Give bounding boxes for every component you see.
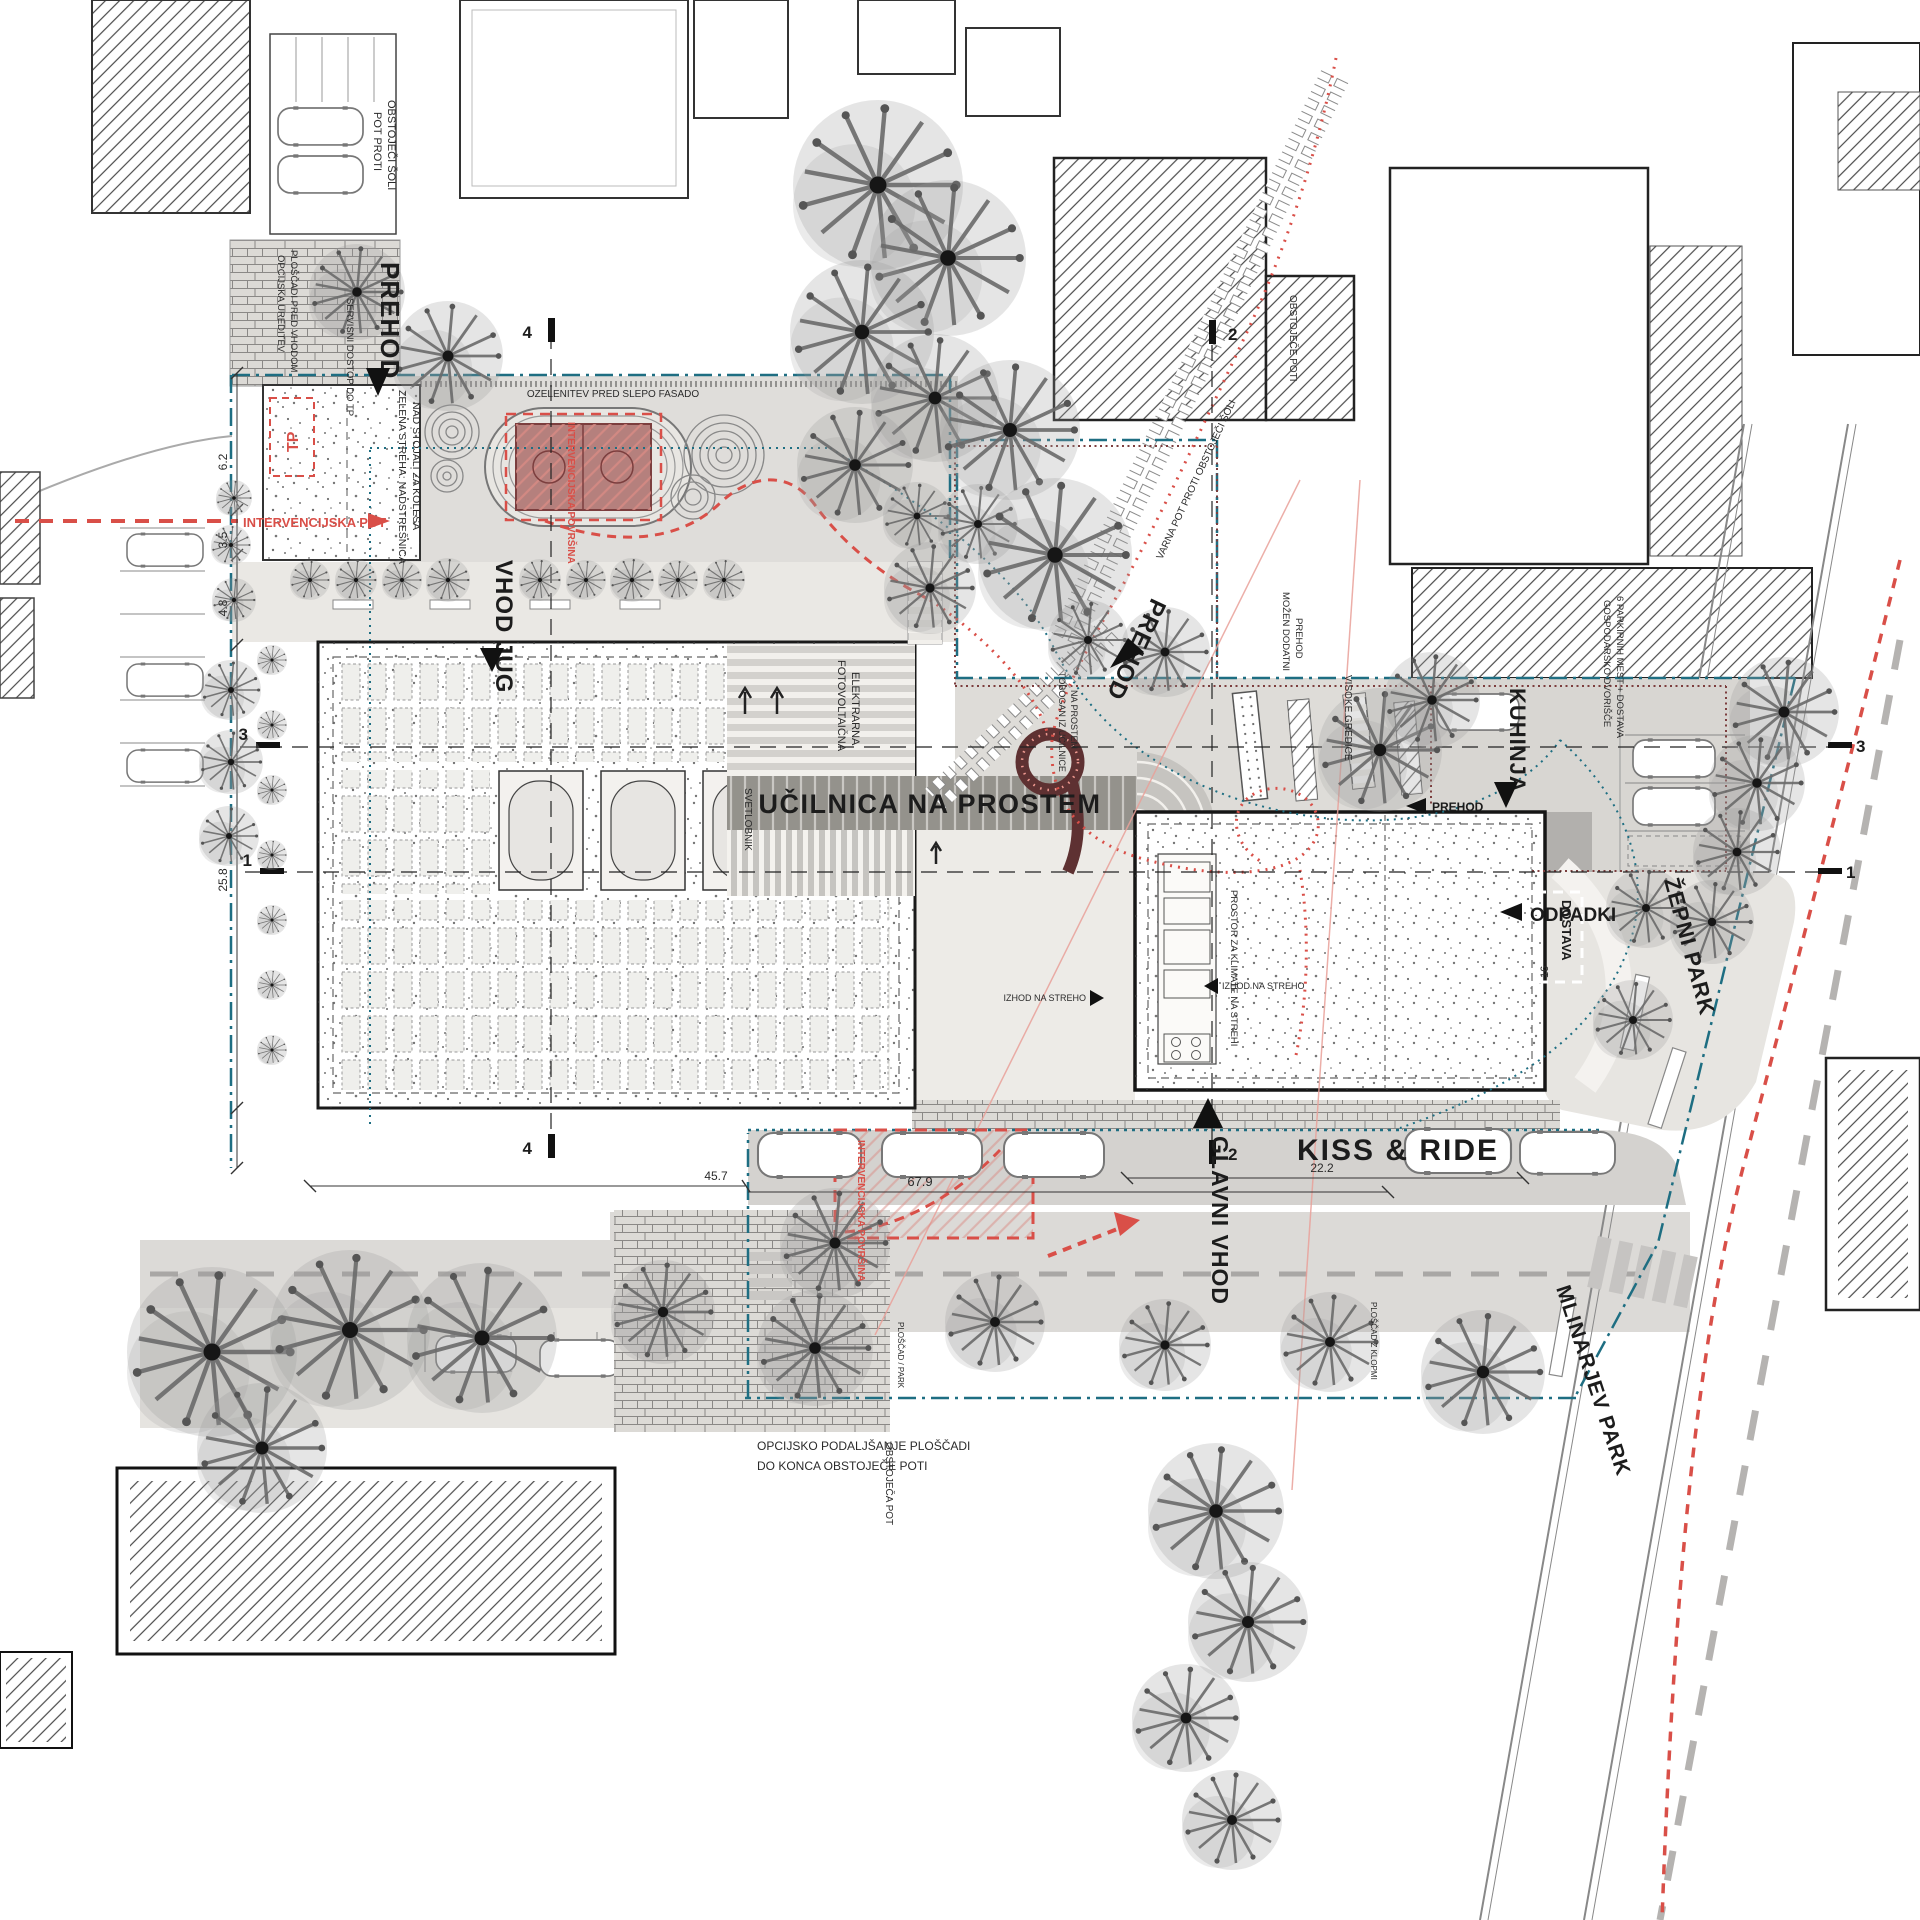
label-kuhinja: KUHINJA xyxy=(1505,688,1530,793)
label-gospodarsko-1: GOSPODARSKO DVORIŠČE xyxy=(1601,600,1612,727)
label-gospodarsko-2: 6 PARKIRNIH MEST + DOSTAVA xyxy=(1614,596,1625,739)
existing-building xyxy=(1390,168,1648,564)
dim-67-9: 67.9 xyxy=(907,1174,932,1189)
label-mozen-1: MOŽEN DODATNI xyxy=(1280,592,1291,671)
label-ozelenitev: OZELENITEV PRED SLEPO FASADO xyxy=(527,389,699,400)
label-ploscad-klopmi: PLOŠČAD Z KLOPMI xyxy=(1369,1302,1378,1380)
section-2-bottom: 2 xyxy=(1228,1145,1237,1164)
section-1-right: 1 xyxy=(1846,863,1855,882)
existing-building-hatched xyxy=(0,598,34,698)
label-opcijska-1: OPCIJSKA UREDITEV xyxy=(275,255,286,353)
dim-45-7: 45.7 xyxy=(704,1169,728,1183)
dim-6-2: 6.2 xyxy=(216,453,230,470)
dim-22-2: 22.2 xyxy=(1310,1161,1334,1175)
label-prehod-top: PREHOD xyxy=(375,262,405,379)
label-pot-proti-2: OBSTOJEČI ŠOLI xyxy=(385,100,398,190)
label-izhod-na-streho-west: IZHOD NA STREHO xyxy=(1003,993,1086,1003)
dim-4-8: 4.8 xyxy=(216,599,230,616)
parked-car xyxy=(127,534,203,566)
parked-car xyxy=(278,156,363,193)
parked-car xyxy=(758,1133,861,1177)
section-4-top: 4 xyxy=(523,323,533,342)
existing-building xyxy=(694,0,788,118)
label-tobogan-1: TOBOGAN IZ UČILNICE xyxy=(1057,672,1067,772)
pv-array xyxy=(340,900,890,1090)
paved-strip-entrance xyxy=(912,1100,1560,1130)
label-servisni-dostop: SERVISNI DOSTOP DO TP xyxy=(344,298,355,416)
dim-25-8: 25.8 xyxy=(216,868,230,892)
site-plan-canvas: PREHOD POT PROTI OBSTOJEČI ŠOLI OPCIJSKA… xyxy=(0,0,1920,1920)
existing-building xyxy=(858,0,955,74)
parked-car xyxy=(1633,788,1715,825)
label-obstojeca-pot: OBSTOJEČA POT xyxy=(883,1442,896,1525)
existing-building-hatched xyxy=(1266,276,1354,420)
pv-array xyxy=(340,770,490,894)
label-dostava: DOSTAVA xyxy=(1559,900,1574,961)
label-intervencijska-pot: INTERVENCIJSKA POT xyxy=(243,515,386,530)
label-opcijsko-1: OPCIJSKO PODALJŠANJE PLOŠČADI xyxy=(757,1438,970,1453)
building-hatch-fill xyxy=(6,1658,66,1742)
entrance-plaza xyxy=(915,818,1135,1100)
existing-building xyxy=(1793,43,1920,355)
parked-car xyxy=(278,108,363,145)
existing-building xyxy=(92,0,250,213)
label-ucilnica: UČILNICA NA PROSTEM xyxy=(759,788,1102,819)
label-vhod-jug: VHOD JUG xyxy=(490,560,517,693)
label-pot-proti-1: POT PROTI xyxy=(371,112,383,171)
label-tobogan-2: NA PROSTEM xyxy=(1069,690,1079,749)
label-mozen-2: PREHOD xyxy=(1293,618,1304,659)
label-svetlobnik: SVETLOBNIK xyxy=(742,788,753,851)
dim-16: 16 xyxy=(1539,966,1551,978)
label-fotovoltaicna-2: ELEKTRARNA xyxy=(849,672,861,746)
label-opcijsko-2: DO KONCA OBSTOJEČE POTI xyxy=(757,1458,927,1473)
parked-car xyxy=(127,664,203,696)
parked-car xyxy=(882,1133,982,1177)
kitchen-equipment xyxy=(1158,854,1216,1064)
parked-car xyxy=(1004,1133,1104,1177)
label-intervencijska-povrsina-zone: INTERVENCIJSKA POVRŠINA xyxy=(855,1140,868,1282)
label-obstojece-poti: OBSTOJEČE POTI xyxy=(1287,295,1300,382)
parked-car xyxy=(127,750,203,782)
label-tp: TP xyxy=(285,431,302,452)
section-3-left: 3 xyxy=(239,725,248,744)
label-prostor-klimate: PROSTOR ZA KLIMATE NA STREHI xyxy=(1228,890,1239,1046)
parked-car xyxy=(1633,740,1715,777)
east-building xyxy=(1135,812,1545,1090)
label-prehod-small: PREHOD xyxy=(1432,800,1484,814)
amphi-steps-bars xyxy=(727,830,915,896)
section-3-right: 3 xyxy=(1856,737,1865,756)
section-1-left: 1 xyxy=(243,851,252,870)
building-hatch-fill xyxy=(130,1481,602,1641)
ramp-bars xyxy=(727,644,915,776)
label-zelena-1: ZELENA STREHA: NADSTREŠNICA xyxy=(396,390,409,564)
label-visoke-gredice: VISOKE GREDICE xyxy=(1342,675,1353,761)
existing-building-hatched xyxy=(0,472,40,584)
dim-3-5: 3.5 xyxy=(216,531,230,548)
label-fotovoltaicna-1: FOTOVOLTAIČNA xyxy=(835,660,848,752)
parked-car xyxy=(1520,1132,1615,1174)
existing-building xyxy=(460,0,688,198)
building-hatch-fill xyxy=(1838,1070,1908,1298)
section-2-top: 2 xyxy=(1228,325,1237,344)
label-zelena-2: NAD STOJALI ZA KOLESA xyxy=(410,402,422,530)
label-izhod-na-streho-east: IZHOD NA STREHO xyxy=(1222,981,1305,991)
site-plan-svg: PREHOD POT PROTI OBSTOJEČI ŠOLI OPCIJSKA… xyxy=(0,0,1920,1920)
existing-building xyxy=(966,28,1060,116)
label-opcijska-2: PLOŠČADI PRED VHODOM xyxy=(288,250,299,373)
label-ploscad-park: PLOŠČAD / PARK xyxy=(896,1322,905,1389)
label-intervencijska-povrsina-court: INTERVENCIJSKA POVRŠINA xyxy=(565,422,578,564)
existing-building-hatched xyxy=(1838,92,1920,190)
section-4-bottom: 4 xyxy=(523,1139,533,1158)
